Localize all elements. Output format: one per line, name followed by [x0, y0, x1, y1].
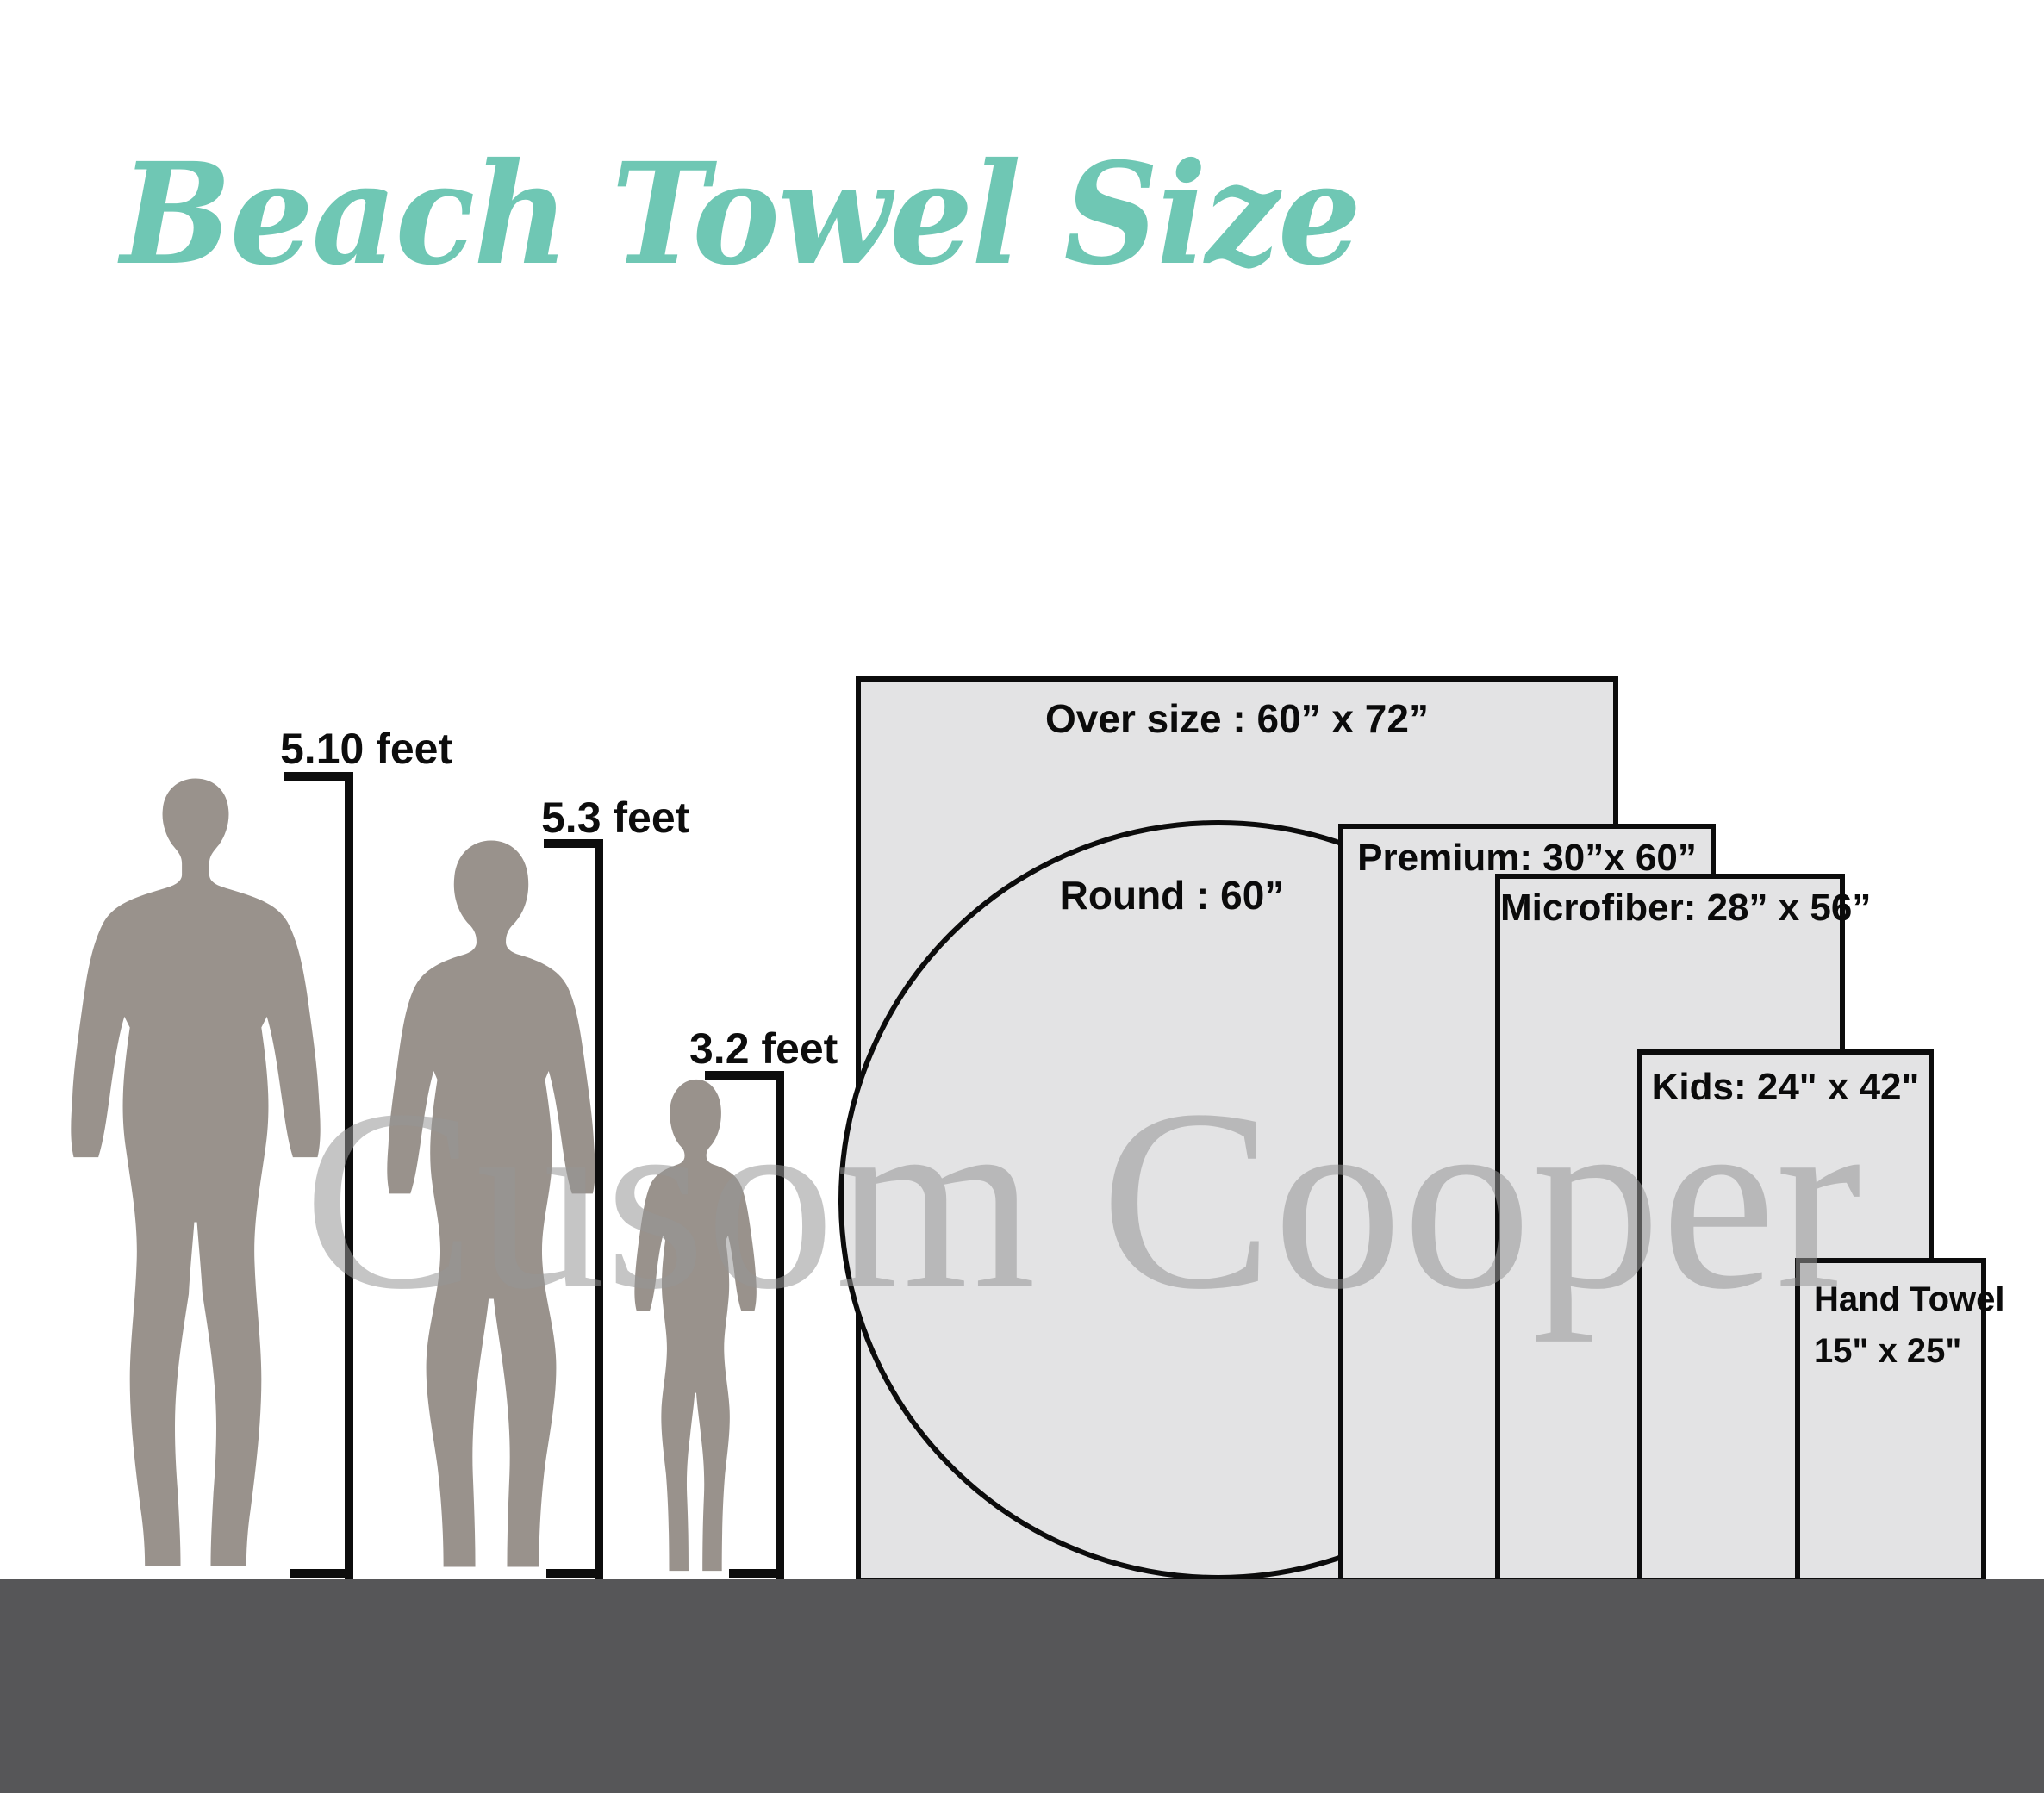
towel-round-label: Round : 60” [1000, 872, 1344, 918]
towel-kids-label: Kids: 24" x 42" [1642, 1066, 1929, 1109]
man-height-label: 5.10 feet [280, 724, 452, 774]
woman-height-bracket-foot [546, 1569, 603, 1578]
towel-hand-towel: Hand Towel 15" x 25" [1795, 1258, 1986, 1584]
beach-towel-size-infographic: Beach Towel Size Over size : 60” x 72” R… [0, 0, 2044, 1793]
towel-hand-label: Hand Towel 15" x 25" [1800, 1263, 1981, 1377]
page-title: Beach Towel Size [121, 138, 1360, 291]
towel-microfiber-label: Microfiber: 28” x 56” [1500, 887, 1840, 930]
woman-silhouette [369, 828, 614, 1579]
man-height-bracket-line [345, 772, 353, 1579]
towel-oversize-label: Over size : 60” x 72” [861, 695, 1613, 742]
man-silhouette [59, 768, 333, 1579]
towel-hand-label-line1: Hand Towel [1814, 1273, 1981, 1325]
child-height-bracket-foot [729, 1569, 784, 1578]
man-height-bracket-foot [290, 1569, 353, 1578]
woman-height-bracket-line [595, 839, 603, 1579]
child-height-label: 3.2 feet [689, 1024, 838, 1074]
child-silhouette [619, 1071, 774, 1579]
child-height-bracket-line [776, 1071, 784, 1579]
ground-bar [0, 1579, 2044, 1793]
woman-height-label: 5.3 feet [541, 793, 689, 843]
towel-hand-label-line2: 15" x 25" [1814, 1325, 1981, 1377]
